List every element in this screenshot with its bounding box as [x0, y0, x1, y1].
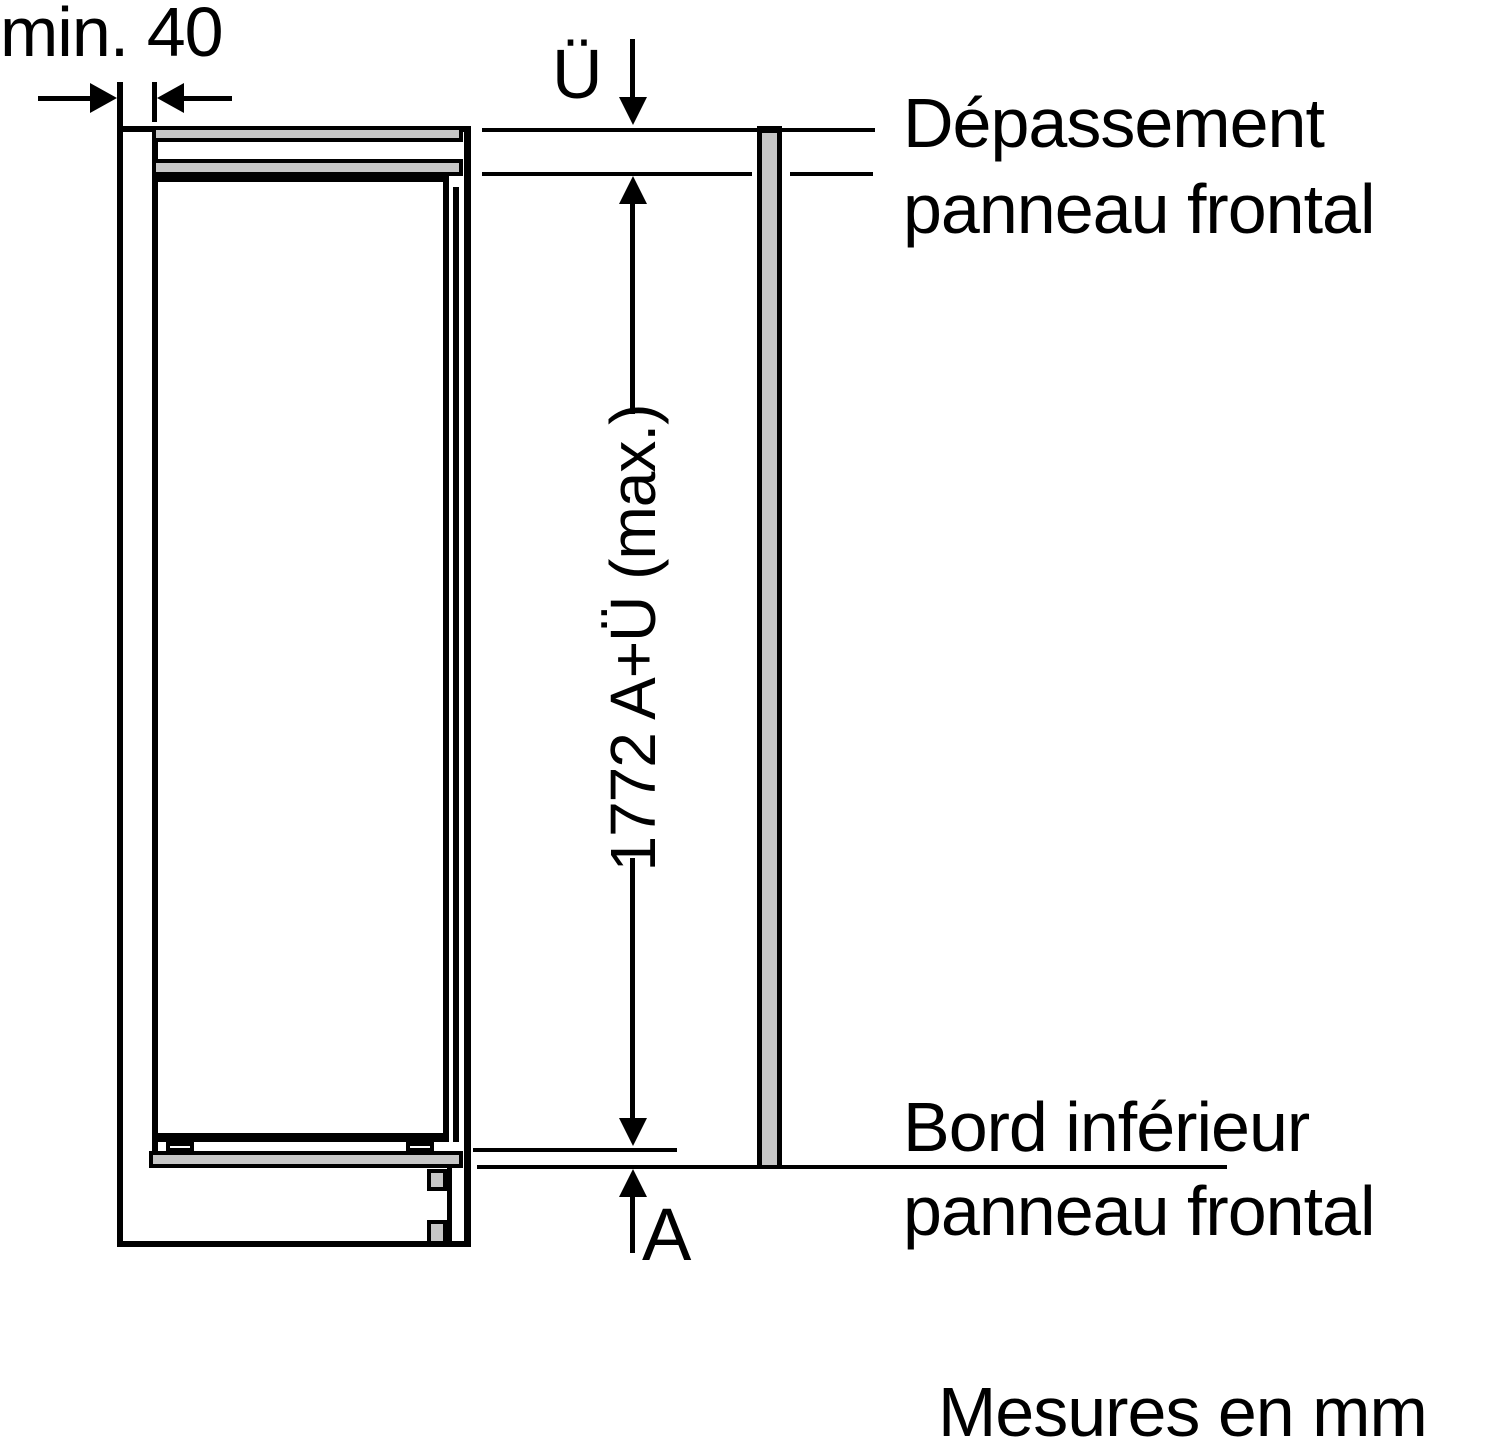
ref-line-appliance-bottom — [473, 1148, 677, 1152]
appliance-plinth-panel — [149, 1151, 463, 1168]
top-annotation: Dépassement panneau frontal — [903, 80, 1375, 252]
ref-line-door-top-right — [790, 172, 873, 176]
bottom-annotation-line2: panneau frontal — [903, 1172, 1375, 1250]
vent-spacer-upper — [427, 1169, 447, 1191]
min-gap-arrow-line-right — [184, 96, 232, 101]
height-dim-line-upper — [630, 204, 635, 414]
arrow-up-icon — [619, 176, 647, 204]
plinth-support-line — [447, 1167, 452, 1245]
appliance-side-line — [453, 187, 459, 1142]
overhang-arrow-line — [630, 39, 635, 97]
cabinet-bottom-line — [117, 1241, 471, 1247]
bottom-annotation: Bord inférieur panneau frontal — [903, 1085, 1375, 1253]
arrow-down-icon — [619, 1118, 647, 1146]
ref-line-panel-top — [482, 128, 875, 132]
ref-line-door-top-left — [482, 172, 752, 176]
appliance-top-rail-upper — [152, 126, 463, 142]
height-dim-line-lower — [630, 858, 635, 1118]
height-dimension-label: 1772 A+Ü (max.) — [598, 388, 668, 888]
arrow-down-icon — [619, 97, 647, 125]
front-panel-bar — [757, 126, 782, 1167]
bottom-offset-label: A — [642, 1192, 690, 1277]
appliance-top-rail-lower — [152, 159, 463, 176]
cabinet-left-wall-outer — [117, 82, 123, 1246]
bottom-annotation-line1: Bord inférieur — [903, 1088, 1309, 1166]
installation-diagram: min. 40 Ü 1772 A+Ü (max.) A Dépassement … — [0, 0, 1500, 1445]
vent-spacer-lower — [427, 1220, 447, 1245]
min-gap-label: min. 40 — [0, 0, 223, 73]
min-gap-arrow-line-left — [38, 96, 92, 101]
bottom-offset-arrow-line — [630, 1197, 635, 1253]
overhang-label: Ü — [552, 34, 602, 115]
top-annotation-line2: panneau frontal — [903, 170, 1375, 248]
units-note: Mesures en mm — [938, 1372, 1427, 1445]
arrow-right-icon — [90, 83, 117, 113]
top-annotation-line1: Dépassement — [903, 84, 1324, 162]
cabinet-right-wall — [464, 126, 471, 1247]
appliance-door — [152, 176, 449, 1142]
arrow-left-icon — [157, 83, 184, 113]
